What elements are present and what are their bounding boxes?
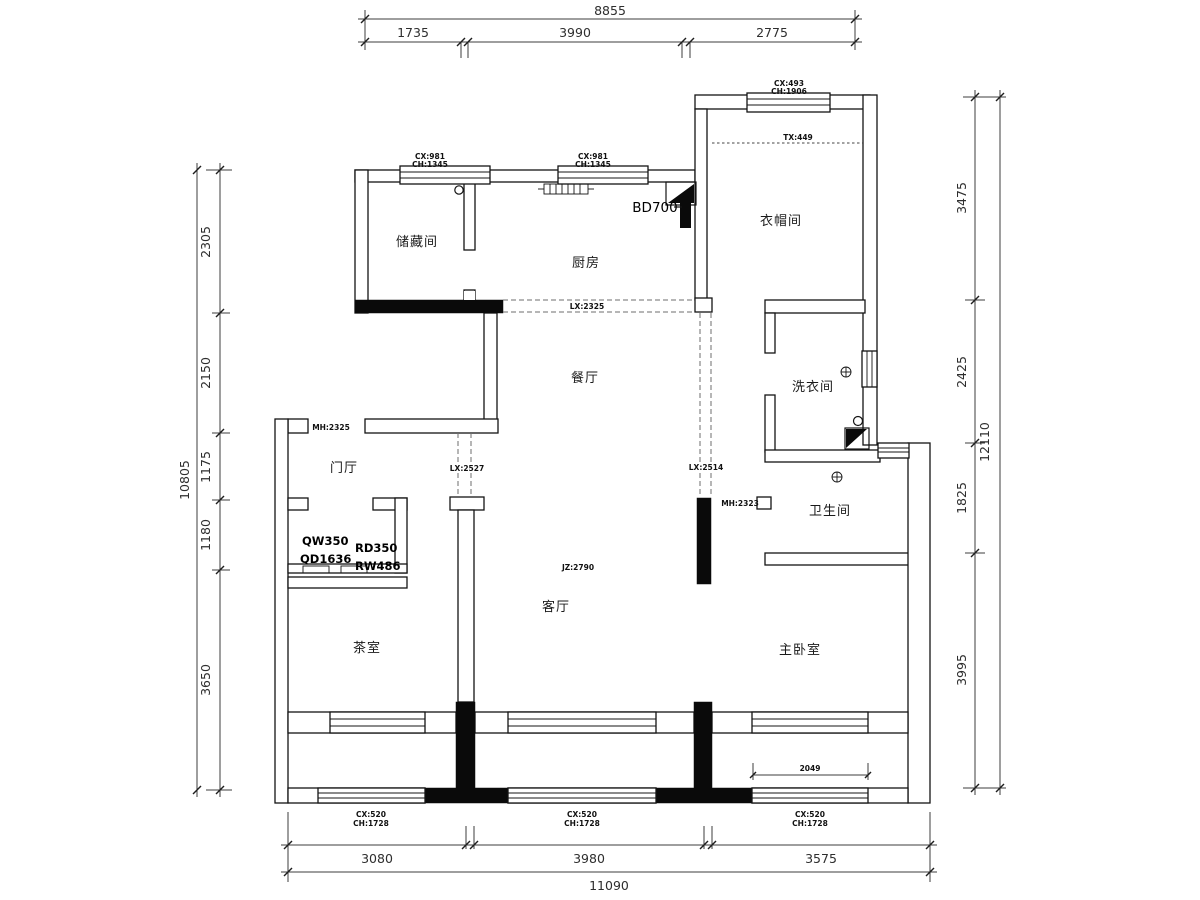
dim-right-s2: 2425: [954, 356, 969, 388]
bottom-wall-pier-left: [425, 788, 508, 803]
dim-bottom-total: 11090: [589, 878, 629, 893]
dim-top-s3: 2775: [756, 25, 788, 40]
floorplan-canvas: 8855 1735 3990 2775 3080 3980 3575 11090…: [0, 0, 1200, 900]
label-window-balcony-middle-ch: CH:1728: [564, 819, 600, 828]
room-label-living: 客厅: [542, 599, 570, 615]
label-entry-door: MH:2325: [312, 423, 350, 432]
label-opening-kitchen-pass: LX:2325: [570, 302, 604, 311]
label-closet-qw: QW350: [302, 534, 348, 548]
dim-bottom-s3: 3575: [805, 851, 837, 866]
label-window-balcony-left-ch: CH:1728: [353, 819, 389, 828]
label-window-balcony-right-ch: CH:1728: [792, 819, 828, 828]
dim-left-s2: 2150: [198, 357, 213, 389]
label-window-kitchen-left-ch: CH:1345: [412, 160, 448, 169]
window-balcony-inner-right: [752, 712, 868, 733]
ceiling-light-bathroom: [832, 472, 842, 482]
dim-left-s3: 1175: [198, 451, 213, 483]
dim-top-s1: 1735: [397, 25, 429, 40]
label-window-balcony-middle-cx: CX:520: [567, 810, 597, 819]
dim-top-total: 8855: [594, 3, 626, 18]
dimension-left: 2305 2150 1175 1180 3650 10805: [177, 163, 232, 797]
label-opening-hall-pass: LX:2514: [689, 463, 723, 472]
room-label-cloakroom: 衣帽间: [760, 213, 802, 229]
window-laundry: [862, 351, 877, 387]
label-closet-qd: QD1636: [300, 552, 351, 566]
dim-left-s1: 2305: [198, 226, 213, 258]
balcony-column-left: [456, 702, 475, 790]
label-window-cloakroom-ch: CH:1906: [771, 87, 807, 96]
storage-door-pivot: [455, 186, 463, 194]
room-label-storage: 储藏间: [396, 235, 438, 250]
dim-left-s4: 1180: [198, 519, 213, 551]
dim-right-s3: 1825: [954, 482, 969, 514]
window-balcony-outer-middle: [508, 788, 656, 803]
label-opening-foyer-pass: LX:2527: [450, 464, 484, 473]
dim-balcony-window: 2049: [800, 764, 821, 773]
room-label-bathroom: 卫生间: [809, 504, 851, 519]
radiator-symbol: [538, 184, 594, 194]
dim-right-total: 12110: [977, 422, 992, 462]
storage-bottom-wall: [355, 300, 503, 313]
room-label-master: 主卧室: [779, 642, 821, 658]
windows-group: [318, 93, 909, 803]
label-window-balcony-left-cx: CX:520: [356, 810, 386, 819]
window-bathroom: [878, 443, 909, 458]
bottom-wall-pier-right: [656, 788, 752, 803]
dim-top-s2: 3990: [559, 25, 591, 40]
label-closet-rw: RW486: [355, 559, 401, 573]
dim-right-s4: 3995: [954, 654, 969, 686]
dim-bottom-s2: 3980: [573, 851, 605, 866]
floorplan-drawing: 8855 1735 3990 2775 3080 3980 3575 11090…: [0, 0, 1200, 900]
room-label-tea: 茶室: [353, 640, 381, 656]
dashed-openings: [458, 143, 863, 497]
dim-right-s1: 3475: [954, 182, 969, 214]
walls: [275, 95, 930, 803]
window-balcony-inner-left: [330, 712, 425, 733]
label-window-kitchen-right-ch: CH:1345: [575, 160, 611, 169]
dimension-right: 3475 2425 1825 3995 12110: [954, 90, 1006, 795]
label-closet-rd: RD350: [355, 541, 397, 555]
room-label-dining: 餐厅: [571, 370, 599, 386]
label-bath-door: MH:2323: [721, 499, 759, 508]
dimension-top: 8855 1735 3990 2775: [358, 3, 862, 58]
ceiling-light-laundry: [841, 367, 851, 377]
window-balcony-outer-left: [318, 788, 425, 803]
room-label-laundry: 洗衣间: [792, 379, 834, 395]
label-living-height: JZ:2790: [561, 563, 594, 572]
balcony-column-right: [694, 702, 712, 790]
dim-left-total: 10805: [177, 460, 192, 500]
label-appliance-bd700: BD700: [632, 200, 677, 216]
living-bedroom-wall: [697, 498, 711, 584]
room-label-kitchen: 厨房: [572, 255, 600, 271]
dim-left-s5: 3650: [198, 664, 213, 696]
room-label-foyer: 门厅: [330, 461, 358, 476]
window-balcony-inner-middle: [508, 712, 656, 733]
dim-bottom-s1: 3080: [361, 851, 393, 866]
label-window-balcony-right-cx: CX:520: [795, 810, 825, 819]
laundry-pivot: [854, 417, 863, 426]
window-balcony-outer-right: [752, 788, 868, 803]
label-cloak-soffit: TX:449: [783, 133, 813, 142]
dimension-balcony-window: 2049: [750, 763, 871, 780]
